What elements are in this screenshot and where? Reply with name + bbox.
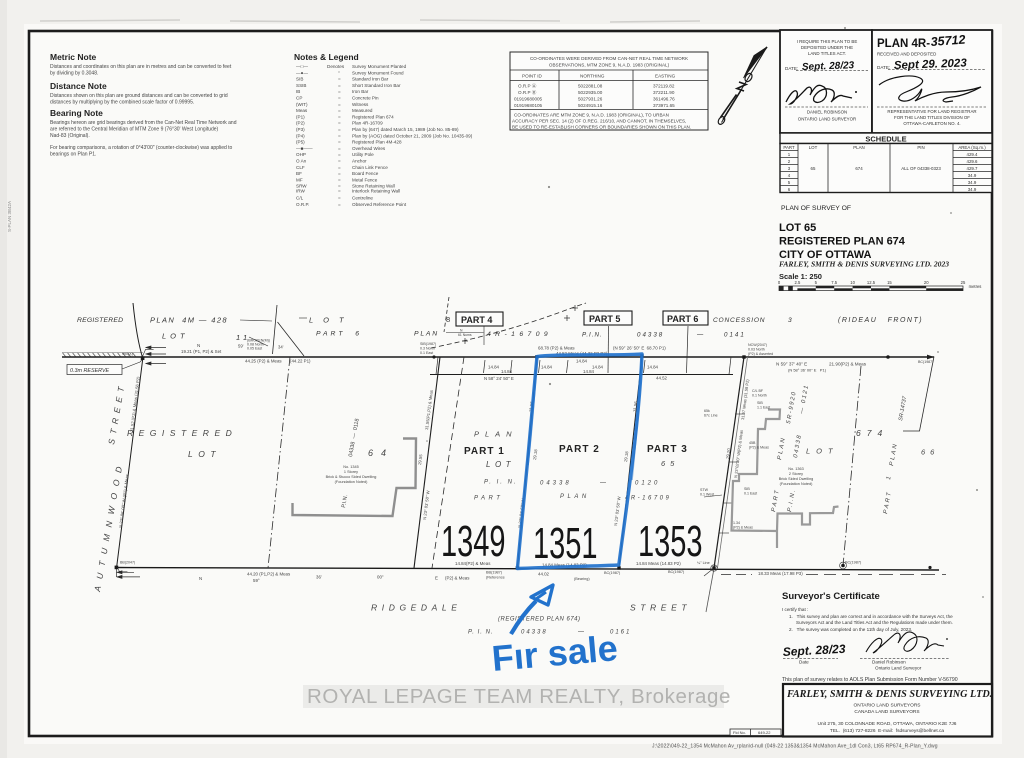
svg-text:=: =	[338, 165, 341, 170]
svg-text:PLAN: PLAN	[560, 494, 590, 500]
svg-text:REGISTERED PLAN 674: REGISTERED PLAN 674	[779, 236, 906, 248]
svg-text:361496.76: 361496.76	[653, 97, 675, 102]
svg-text:=: =	[338, 96, 341, 101]
svg-text:0.05 East: 0.05 East	[247, 347, 262, 351]
svg-text:12.5: 12.5	[867, 280, 876, 285]
svg-text:10: 10	[850, 280, 855, 285]
svg-text:3: 3	[788, 317, 792, 324]
svg-text:RECEIVED AND DEPOSITED: RECEIVED AND DEPOSITED	[877, 52, 936, 57]
svg-text:LOT: LOT	[162, 332, 189, 341]
svg-text:7.5: 7.5	[831, 280, 837, 285]
svg-text:PLAN: PLAN	[853, 145, 864, 150]
svg-text:61 Nums: 61 Nums	[458, 333, 472, 337]
svg-text:—: —	[599, 481, 607, 487]
svg-text:44.52: 44.52	[656, 376, 668, 381]
svg-text:P. I. N.: P. I. N.	[468, 630, 494, 636]
svg-text:PART 5: PART 5	[589, 314, 620, 324]
svg-text:TEL. (613) 727-8226 E-mail:: TEL. (613) 727-8226 E-mail: fsdsurveys@b…	[830, 728, 945, 734]
svg-text:(P2) & Asserted: (P2) & Asserted	[748, 352, 773, 356]
svg-text:44.25 (P2) & Meas: 44.25 (P2) & Meas	[245, 359, 282, 364]
svg-text:E: E	[435, 576, 438, 581]
svg-text:ALL OF 04338-0323: ALL OF 04338-0323	[901, 166, 941, 171]
svg-text:0.1 East: 0.1 East	[744, 492, 757, 496]
svg-text:=: =	[338, 171, 341, 176]
svg-text:21.90(P2) & Meas: 21.90(P2) & Meas	[829, 362, 867, 367]
svg-text:C/L BF: C/L BF	[752, 389, 764, 393]
svg-text:(N 58° 36' 00" E P1): (N 58° 36' 00" E P1)	[788, 368, 827, 373]
svg-text:C/L: C/L	[296, 196, 304, 201]
svg-text:(P4): (P4)	[296, 133, 305, 138]
svg-text:CONCESSION: CONCESSION	[713, 317, 765, 324]
svg-text:(RIDEAU FRONT): (RIDEAU FRONT)	[838, 317, 923, 324]
svg-text:=: =	[338, 146, 341, 151]
svg-text:19.21 (P1, P2) & Set: 19.21 (P1, P2) & Set	[181, 349, 222, 354]
svg-text:N 58° 24' 50" E: N 58° 24' 50" E	[484, 376, 514, 381]
svg-text:5022935.00: 5022935.00	[578, 90, 603, 95]
svg-text:bearings on Plan P1.: bearings on Plan P1.	[50, 152, 96, 158]
svg-text:NCW(2047): NCW(2047)	[748, 343, 767, 347]
svg-text:=: =	[338, 77, 341, 82]
svg-text:distances by multiplying by th: distances by multiplying by the combined…	[50, 100, 194, 106]
svg-text:5024915.16: 5024915.16	[578, 103, 603, 108]
svg-text:65k: 65k	[704, 409, 710, 413]
svg-text:5027931.26: 5027931.26	[578, 97, 603, 102]
svg-text:Bearing Note: Bearing Note	[50, 108, 103, 118]
svg-text:14.84: 14.84	[501, 369, 513, 374]
svg-text:0.03 North: 0.03 North	[748, 348, 765, 352]
svg-text:Registered Plan 4M-428: Registered Plan 4M-428	[352, 140, 402, 145]
svg-text:SIB: SIB	[296, 77, 303, 82]
svg-text:0.3 North: 0.3 North	[420, 347, 435, 351]
svg-text:25: 25	[961, 280, 966, 285]
svg-text:Plan by (AOG) dated October 21: Plan by (AOG) dated October 21, 2009 (Jo…	[352, 133, 473, 138]
svg-text:649-22: 649-22	[758, 730, 771, 735]
svg-text:This plan of survey relates to: This plan of survey relates to AOLS Plan…	[782, 677, 958, 683]
svg-text:1353: 1353	[638, 516, 703, 566]
svg-text:PLAN: PLAN	[414, 331, 439, 338]
svg-text:EASTING: EASTING	[655, 74, 676, 79]
svg-text:429.4: 429.4	[967, 152, 979, 157]
svg-text:O.R.P Ⓐ: O.R.P Ⓐ	[518, 83, 537, 90]
svg-text:SIB: SIB	[744, 487, 750, 491]
svg-text:Nad-83 (Original).: Nad-83 (Original).	[50, 133, 90, 139]
svg-text:LOT: LOT	[806, 447, 839, 456]
svg-text:Sept 29. 2023: Sept 29. 2023	[894, 57, 968, 72]
svg-text:674: 674	[855, 166, 863, 171]
svg-text:=: =	[338, 108, 341, 113]
svg-text:2 Storey: 2 Storey	[789, 472, 803, 476]
svg-text:35712: 35712	[930, 33, 966, 49]
svg-text:0120: 0120	[635, 481, 660, 487]
svg-text:Ontario Land Surveyor: Ontario Land Surveyor	[875, 666, 922, 671]
svg-text:1. This survey and plan are: 1. This survey and plan are correct and …	[789, 614, 953, 619]
svg-text:Observed Reference Point: Observed Reference Point	[352, 202, 407, 207]
svg-text:Witness: Witness	[352, 102, 369, 107]
svg-text:=: =	[338, 127, 341, 132]
svg-text:OBSERVATIONS, MTM ZONE 9, N.A.: OBSERVATIONS, MTM ZONE 9, N.A.D. 1983 (O…	[549, 63, 670, 68]
svg-text:Distance Note: Distance Note	[50, 81, 107, 91]
svg-text:=: =	[338, 102, 341, 107]
svg-text:PART 4: PART 4	[461, 315, 492, 325]
svg-text:For bearing comparisons, a rot: For bearing comparisons, a rotation of 0…	[50, 145, 233, 151]
svg-text:372119.82: 372119.82	[653, 84, 675, 89]
svg-text:PART 1: PART 1	[464, 446, 505, 457]
svg-text:2.5: 2.5	[794, 280, 800, 285]
svg-text:Plan by (647) dated March 15,: Plan by (647) dated March 15, 1989 (Job …	[352, 127, 459, 132]
svg-text:1349: 1349	[441, 516, 506, 566]
svg-text:0.1 West: 0.1 West	[700, 493, 714, 497]
svg-text:S-PLAN 3B42A: S-PLAN 3B42A	[7, 201, 12, 232]
svg-text:Concrete Pin: Concrete Pin	[352, 96, 379, 101]
svg-text:REGISTERED: REGISTERED	[77, 317, 123, 324]
svg-text:ONTARIO LAND SURVEYOR: ONTARIO LAND SURVEYOR	[798, 117, 856, 122]
svg-text:IRW: IRW	[296, 189, 306, 194]
svg-text:Date: Date	[799, 660, 809, 665]
svg-text:BC(1987): BC(1987)	[668, 570, 685, 574]
svg-text:(WIT): (WIT)	[296, 102, 308, 107]
svg-text:STREET: STREET	[630, 603, 691, 613]
svg-text:L O T: L O T	[309, 316, 348, 325]
svg-text:Fld No.: Fld No.	[733, 730, 746, 735]
svg-text:FARLEY, SMITH & DENIS SURVEYIN: FARLEY, SMITH & DENIS SURVEYING LTD. 202…	[779, 260, 949, 269]
svg-text:IB: IB	[296, 89, 300, 94]
svg-text:PLAN 4R-: PLAN 4R-	[877, 38, 930, 50]
svg-text:=: =	[338, 159, 341, 164]
svg-text:(P3): (P3)	[296, 127, 305, 132]
svg-text:65: 65	[811, 166, 816, 171]
svg-text:=: =	[338, 83, 341, 88]
svg-text:34.9: 34.9	[968, 173, 977, 178]
svg-text:Standard Iron Bar: Standard Iron Bar	[352, 77, 389, 82]
svg-text:=: =	[338, 133, 341, 138]
svg-text:(REGISTERED PLAN 674): (REGISTERED PLAN 674)	[498, 617, 581, 623]
svg-text:0141: 0141	[724, 332, 746, 339]
svg-text:67c Line: 67c Line	[704, 414, 718, 418]
svg-text:=: =	[338, 121, 341, 126]
svg-text:(P2) & Meas: (P2) & Meas	[445, 576, 470, 581]
svg-text:REPRESENTATIVE FOR LAND REGIST: REPRESENTATIVE FOR LAND REGISTRAR	[887, 109, 976, 114]
svg-text:NORTHING: NORTHING	[580, 74, 605, 79]
svg-text:CO-ORDINATES ARE MTM ZONE 9, N: CO-ORDINATES ARE MTM ZONE 9, N.A.D. 1983…	[514, 113, 669, 118]
svg-text:Chain Link Fence: Chain Link Fence	[352, 165, 388, 170]
svg-text:=: =	[338, 202, 341, 207]
svg-text:Distances shown on this plan a: Distances shown on this plan are ground …	[50, 93, 228, 99]
svg-text:O An: O An	[296, 159, 307, 164]
svg-text:Brick & Stucco Sided Dwelling: Brick & Stucco Sided Dwelling	[326, 475, 377, 479]
svg-text:OTTAWA-CARLETON NO. 4.: OTTAWA-CARLETON NO. 4.	[903, 121, 960, 126]
svg-text:64: 64	[368, 448, 394, 458]
svg-text:DANIEL ROBINSON: DANIEL ROBINSON	[807, 110, 847, 115]
svg-text:CO-ORDINATES WERE DERIVED FROM: CO-ORDINATES WERE DERIVED FROM CAN-NET R…	[530, 56, 689, 61]
svg-text:CANADA LAND SURVEYORS: CANADA LAND SURVEYORS	[854, 709, 919, 715]
svg-text:(P2) & Meas: (P2) & Meas	[733, 526, 753, 530]
svg-text:Interlock Retaining Wall: Interlock Retaining Wall	[352, 189, 400, 194]
svg-text:14.84: 14.84	[488, 365, 500, 370]
svg-text:01919680005: 01919680005	[514, 97, 543, 102]
svg-text:Bearings hereon are grid beari: Bearings hereon are grid bearings derive…	[50, 120, 237, 126]
svg-text:5022881.08: 5022881.08	[578, 84, 603, 89]
svg-text:Surveyor's Certificate: Surveyor's Certificate	[782, 591, 880, 602]
svg-text:14.84: 14.84	[647, 365, 659, 370]
svg-text:PIN: PIN	[917, 145, 924, 150]
svg-text:=: =	[338, 89, 341, 94]
svg-text:by dividing by 0.3048.: by dividing by 0.3048.	[50, 71, 98, 77]
svg-text:Distances and coordinates on t: Distances and coordinates on this plan a…	[50, 64, 232, 70]
svg-text:BB(1987): BB(1987)	[486, 571, 503, 575]
svg-text:BC(1987): BC(1987)	[845, 561, 862, 565]
svg-text:=: =	[338, 189, 341, 194]
svg-text:MF: MF	[296, 177, 303, 182]
svg-text:Meas: Meas	[296, 108, 308, 113]
svg-text:429.7: 429.7	[967, 166, 979, 171]
svg-text:Surveyors Act and the Land Tit: Surveyors Act and the Land Titles Act an…	[796, 620, 953, 625]
svg-text:ROYAL LEPAGE TEAM REALTY, Brok: ROYAL LEPAGE TEAM REALTY, Brokerage	[307, 685, 731, 708]
svg-text:Board Fence: Board Fence	[352, 171, 379, 176]
svg-text:PART: PART	[474, 496, 503, 502]
svg-text:O.R.P Ⓑ: O.R.P Ⓑ	[518, 89, 537, 96]
svg-text:PLAN: PLAN	[474, 430, 518, 439]
svg-text:SSIB: SSIB	[296, 83, 306, 88]
svg-text:45B: 45B	[749, 441, 756, 445]
svg-text:Survey Monument Planted: Survey Monument Planted	[352, 64, 407, 69]
svg-text:34': 34'	[278, 345, 284, 350]
svg-text:—: —	[696, 332, 704, 339]
svg-text:RIDGEDALE: RIDGEDALE	[371, 603, 462, 613]
svg-text:20: 20	[924, 280, 929, 285]
svg-text:Plan 4R-16709: Plan 4R-16709	[352, 121, 383, 126]
svg-text:8: 8	[446, 315, 450, 324]
svg-text:Iron Bar: Iron Bar	[352, 89, 369, 94]
svg-text:14.84: 14.84	[541, 365, 553, 370]
svg-text:Unit 275, 30 COLONNADE ROAD, O: Unit 275, 30 COLONNADE ROAD, OTTAWA, ONT…	[818, 721, 957, 727]
svg-text:68.78 (P2) & Meas: 68.78 (P2) & Meas	[538, 346, 575, 351]
svg-text:SIB: SIB	[757, 401, 763, 405]
svg-text:No. 1363: No. 1363	[788, 467, 803, 471]
svg-text:36': 36'	[316, 575, 322, 580]
svg-text:ACCURACY PER SEC. 14 (2) OF O.: ACCURACY PER SEC. 14 (2) OF O.REG. 216/1…	[512, 119, 686, 124]
svg-text:0.1 East: 0.1 East	[420, 351, 433, 355]
svg-text:04338: 04338	[540, 481, 572, 487]
svg-text:01919680105: 01919680105	[514, 103, 543, 108]
svg-text:1.34: 1.34	[733, 521, 740, 525]
svg-text:(P1): (P1)	[296, 114, 305, 119]
svg-text:PART 2: PART 2	[559, 444, 600, 455]
svg-text:P.I.N.: P.I.N.	[582, 332, 603, 339]
svg-text:Short Standard Iron Bar: Short Standard Iron Bar	[352, 83, 401, 88]
svg-text:44.02: 44.02	[538, 572, 550, 577]
svg-text:SIB(1987): SIB(1987)	[420, 342, 436, 346]
svg-text:14.84: 14.84	[576, 359, 588, 364]
svg-text:I certify that :: I certify that :	[782, 607, 808, 612]
svg-text:Brick Sided Dwelling: Brick Sided Dwelling	[779, 477, 814, 481]
svg-text:FARLEY, SMITH & DENIS SURVEYIN: FARLEY, SMITH & DENIS SURVEYING LTD.	[786, 689, 992, 700]
svg-text:REGISTERED: REGISTERED	[127, 428, 237, 438]
svg-text:STW: STW	[700, 488, 709, 492]
svg-text:1351: 1351	[533, 518, 598, 568]
svg-text:(Foundation Noted): (Foundation Noted)	[335, 480, 368, 484]
svg-text:N: N	[197, 343, 200, 348]
svg-text:Centreline: Centreline	[352, 196, 373, 201]
svg-text:674: 674	[856, 428, 888, 438]
svg-text:N: N	[199, 576, 202, 581]
svg-text:PLAN 4M — 428: PLAN 4M — 428	[150, 316, 228, 325]
svg-text:Daniel Robinson: Daniel Robinson	[872, 660, 906, 665]
svg-text:Measured: Measured	[352, 108, 373, 113]
svg-text:4R-16709: 4R-16709	[487, 331, 552, 338]
svg-text:(N 59° 26' 50" E 68.70 P1): (N 59° 26' 50" E 68.70 P1)	[613, 346, 666, 351]
svg-text:=: =	[338, 152, 341, 157]
svg-text:PART 3: PART 3	[647, 444, 688, 455]
svg-text:No. 1345: No. 1345	[343, 465, 358, 469]
svg-text:PART: PART	[783, 145, 795, 150]
svg-text:ONTARIO LAND SURVEYORS: ONTARIO LAND SURVEYORS	[854, 703, 921, 709]
svg-text:=: =	[338, 177, 341, 182]
svg-text:18.33 Meas (17.98 P3): 18.33 Meas (17.98 P3)	[758, 571, 803, 576]
svg-text:POINT ID: POINT ID	[522, 74, 543, 79]
svg-text:2. The survey was completed: 2. The survey was completed on the 11th …	[789, 627, 912, 632]
svg-text:PLAN OF SURVEY OF: PLAN OF SURVEY OF	[781, 205, 851, 212]
svg-text:BF: BF	[296, 171, 302, 176]
svg-text:15: 15	[887, 280, 892, 285]
svg-text:Survey Monument Found: Survey Monument Found	[352, 70, 404, 75]
svg-text:LOT: LOT	[809, 145, 818, 150]
svg-text:N 59° 37' 40" E: N 59° 37' 40" E	[776, 362, 807, 367]
svg-text:LOT 65: LOT 65	[779, 222, 816, 234]
svg-text:BE USED TO RE-ESTABLISH CORNER: BE USED TO RE-ESTABLISH CORNERS OR BOUND…	[512, 125, 691, 130]
svg-text:=: =	[338, 114, 341, 119]
svg-text:Registered Plan 674: Registered Plan 674	[352, 114, 394, 119]
svg-text:65: 65	[661, 459, 679, 468]
svg-text:44.20 (P1,P2) & Meas: 44.20 (P1,P2) & Meas	[247, 572, 291, 577]
svg-text:CLF: CLF	[296, 165, 305, 170]
svg-text:Metal Fence: Metal Fence	[352, 177, 378, 182]
svg-text:429.6: 429.6	[967, 159, 979, 164]
svg-text:14.84: 14.84	[583, 369, 595, 374]
svg-text:(Reference: (Reference	[486, 576, 505, 580]
svg-text:0.1 North: 0.1 North	[752, 394, 767, 398]
svg-text:BC(1987): BC(1987)	[918, 360, 933, 364]
svg-text:I REQUIRE THIS PLAN TO BE: I REQUIRE THIS PLAN TO BE	[797, 39, 858, 44]
svg-text:CP: CP	[296, 96, 302, 101]
svg-text:PART 6: PART 6	[667, 314, 698, 324]
svg-text:59°: 59°	[253, 578, 260, 583]
svg-text:990(X): 990(X)	[122, 352, 133, 356]
svg-text:1 Storey: 1 Storey	[344, 470, 358, 474]
svg-text:(44.22 P1): (44.22 P1)	[290, 359, 311, 364]
svg-text:O.R.P.: O.R.P.	[296, 202, 309, 207]
svg-text:FOR THE LAND TITLES DIVISION O: FOR THE LAND TITLES DIVISION OF	[894, 115, 970, 120]
svg-text:Anchor: Anchor	[352, 159, 367, 164]
svg-text:34.9: 34.9	[968, 187, 977, 192]
svg-text:1: 1	[236, 333, 240, 342]
svg-text:1.1 East: 1.1 East	[757, 406, 770, 410]
svg-text:(P2): (P2)	[296, 121, 305, 126]
svg-text:Metric Note: Metric Note	[50, 52, 97, 62]
svg-text:59': 59'	[238, 344, 244, 349]
svg-text:Sept. 28/23: Sept. 28/23	[802, 60, 855, 73]
svg-text:are referred to the Central Me: are referred to the Central Meridian of …	[50, 127, 219, 133]
svg-text:0.3m RESERVE: 0.3m RESERVE	[70, 368, 110, 374]
svg-text:—□—: —□—	[296, 64, 308, 69]
svg-text:OHP: OHP	[296, 152, 306, 157]
svg-text:(P5): (P5)	[296, 140, 305, 145]
svg-text:Notes & Legend: Notes & Legend	[294, 52, 359, 62]
svg-text:372211.90: 372211.90	[653, 90, 675, 95]
svg-text:—●—: —●—	[296, 70, 308, 75]
svg-text:DEPOSITED UNDER THE: DEPOSITED UNDER THE	[801, 45, 853, 50]
svg-text:=: =	[338, 140, 341, 145]
svg-text:34.9: 34.9	[968, 180, 977, 185]
svg-text:00": 00"	[377, 575, 384, 580]
svg-text:LOT: LOT	[188, 449, 221, 459]
svg-text:BC(1987): BC(1987)	[604, 571, 621, 575]
svg-text:4R-16709: 4R-16709	[625, 496, 671, 502]
svg-text:Denotes: Denotes	[327, 64, 345, 69]
svg-text:SCHEDULE: SCHEDULE	[865, 135, 906, 144]
svg-text:Utility Pole: Utility Pole	[352, 152, 374, 157]
svg-text:(Foundation Noted): (Foundation Noted)	[780, 482, 813, 486]
svg-text:=: =	[338, 196, 341, 201]
svg-text:PART 6: PART 6	[316, 331, 362, 338]
svg-text:metres: metres	[969, 284, 982, 289]
svg-text:Overhead Wires: Overhead Wires	[352, 146, 386, 151]
svg-text:J:\2022\049-22_1354 McMahon Av: J:\2022\049-22_1354 McMahon Av_rplan\d-n…	[652, 744, 938, 750]
svg-text:LOT: LOT	[486, 460, 515, 469]
svg-text:BB(2047): BB(2047)	[120, 561, 135, 565]
svg-text:AREA (Sq.m.): AREA (Sq.m.)	[958, 145, 986, 150]
svg-text:—■——: —■——	[296, 146, 313, 151]
svg-text:66: 66	[921, 448, 939, 457]
svg-text:LAND TITLES ACT.: LAND TITLES ACT.	[808, 51, 846, 56]
svg-text:(P2) & Meas: (P2) & Meas	[749, 446, 769, 450]
svg-text:04338: 04338	[637, 332, 664, 339]
svg-text:P. I. N.: P. I. N.	[484, 480, 518, 486]
svg-text:(Bearing): (Bearing)	[574, 577, 590, 581]
svg-text:373971.65: 373971.65	[653, 103, 675, 108]
